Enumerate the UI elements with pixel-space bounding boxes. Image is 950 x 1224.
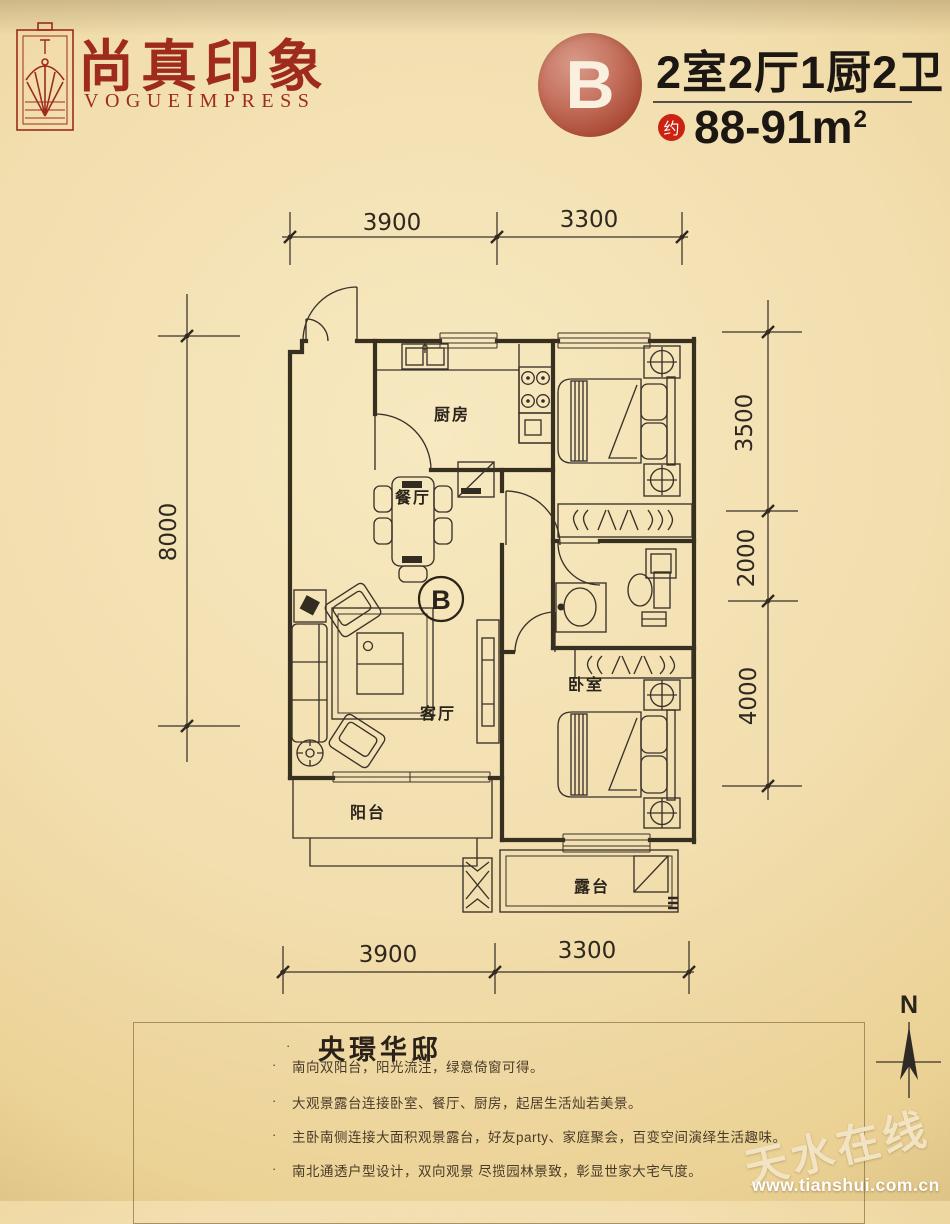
- title-dot: ·: [286, 1038, 290, 1053]
- brand-emblem-icon: [14, 22, 78, 134]
- unit-type-badge: B: [538, 33, 642, 137]
- dim-left: 8000: [156, 503, 182, 562]
- headboard: [667, 710, 675, 800]
- dining-chair: [434, 486, 452, 512]
- living-furniture: [292, 582, 499, 770]
- hangers: [588, 656, 675, 674]
- blanket-fold: [609, 718, 637, 790]
- label-terrace: 露台: [574, 877, 610, 896]
- bullet-dot: ·: [272, 1127, 276, 1142]
- area-unit-sup: 2: [854, 106, 867, 133]
- description-bullet-2: 大观景露台连接卧室、餐厅、厨房，起居生活灿若美景。: [292, 1092, 642, 1112]
- dim-bottom-right: 3300: [558, 938, 617, 964]
- balcony: [293, 780, 492, 838]
- armchair: [327, 713, 386, 770]
- unit-area-row: 约 88-91m2: [658, 104, 866, 150]
- north-compass: N: [876, 991, 941, 1098]
- pillow: [641, 716, 667, 753]
- dining-chair: [434, 518, 452, 544]
- bedroom1-furniture: [558, 346, 692, 537]
- dim-right-bottom: 4000: [736, 667, 762, 726]
- unit-layout-spec: 2室2厅1厨2卫: [656, 36, 944, 101]
- unit-marker-letter: B: [431, 585, 451, 615]
- entrance-door-arc: [303, 287, 357, 341]
- entrance-door-small-arc: [306, 319, 328, 341]
- area-unit: m: [812, 101, 853, 153]
- dining-chair: [399, 566, 427, 582]
- windows: [333, 333, 650, 852]
- pillow: [641, 423, 667, 459]
- brand-name-english: VOGUEIMPRESS: [84, 90, 315, 113]
- approx-badge: 约: [658, 114, 685, 141]
- dining-chair: [374, 486, 392, 512]
- area-number: 88-91: [694, 101, 812, 153]
- north-label: N: [900, 991, 918, 1019]
- dim-right-top: 3500: [732, 394, 758, 453]
- bedroom1-window: [558, 333, 650, 348]
- dimension-annotations: 3900 3300 3900 3300 8000 3500 2000 4000: [156, 207, 802, 994]
- description-bullet-4: 南北通透户型设计，双向观景 尽揽园林景致，彰显世家大宅气度。: [292, 1160, 702, 1180]
- floorplan-poster-photo: { "brand": { "name_cn": "尚真印象", "name_en…: [0, 0, 950, 1201]
- description-bullet-1: 南向双阳台，阳光流注，绿意倚窗可得。: [292, 1056, 544, 1076]
- label-balcony: 阳台: [350, 803, 386, 822]
- master-door-arc: [515, 612, 555, 652]
- dim-right-middle: 2000: [734, 529, 760, 588]
- bath-door-arc: [558, 543, 600, 585]
- label-dining: 餐厅: [394, 488, 431, 507]
- unit-type-letter: B: [565, 51, 614, 119]
- dim-top-right: 3300: [560, 207, 619, 233]
- label-living: 客厅: [420, 704, 456, 723]
- room-labels: 厨房 餐厅 客厅 卧室 阳台 露台 B: [350, 405, 610, 896]
- master-bedroom-furniture: [558, 648, 692, 828]
- bullet-dot: ·: [272, 1161, 276, 1176]
- bullet-dot: ·: [272, 1057, 276, 1072]
- dim-bottom-left: 3900: [359, 942, 418, 968]
- pillow: [641, 756, 667, 793]
- dim-top-left: 3900: [363, 210, 422, 236]
- bathroom-fixtures: [556, 549, 676, 632]
- walls: [290, 339, 694, 842]
- hangers: [574, 510, 673, 530]
- pillow: [641, 384, 667, 420]
- basin: [564, 588, 596, 626]
- toilet: [628, 574, 652, 606]
- bullet-dot: ·: [272, 1093, 276, 1108]
- unit-area-value: 88-91m2: [694, 104, 866, 150]
- master-window: [563, 834, 650, 852]
- sofa: [292, 624, 327, 742]
- blanket-fold: [609, 385, 637, 458]
- kitchen-door-arc: [375, 414, 431, 470]
- living-balcony-slider: [333, 772, 490, 782]
- floor-plan-drawing: 3900 3300 3900 3300 8000 3500 2000 4000: [0, 0, 950, 1201]
- description-bullet-3: 主卧南侧连接大面积观景露台，好友party、家庭聚会，百变空间演绎生活趣味。: [292, 1126, 787, 1146]
- headboard: [667, 377, 675, 465]
- dining-chair: [374, 518, 392, 544]
- watermark-site-url: www.tianshui.com.cn: [752, 1175, 940, 1196]
- label-bedroom: 卧室: [568, 675, 604, 694]
- label-kitchen: 厨房: [434, 405, 470, 424]
